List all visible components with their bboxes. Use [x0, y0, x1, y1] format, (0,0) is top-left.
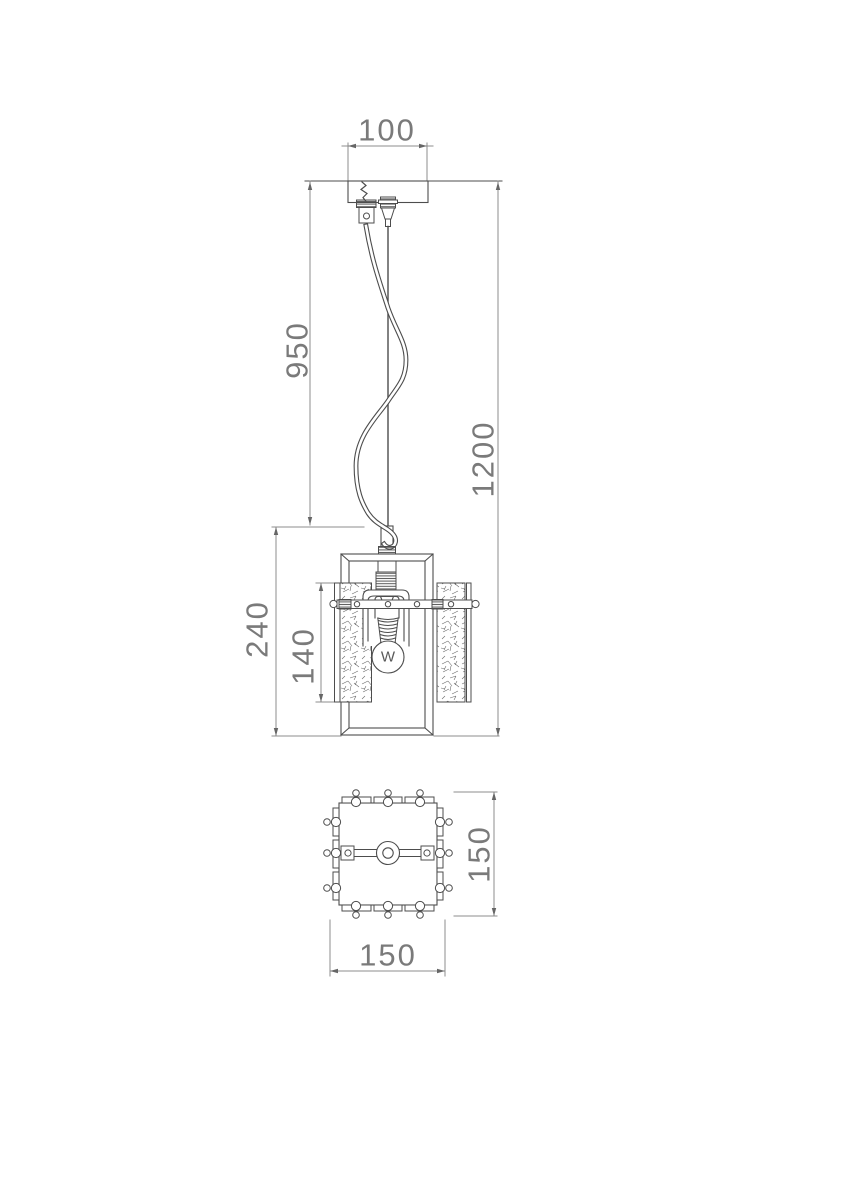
plate-center-hub [377, 842, 400, 865]
wire-grip [379, 197, 398, 227]
dim-canopy-width: 100 [358, 115, 416, 146]
bar-screw [448, 602, 453, 607]
bar-screw [354, 602, 359, 607]
dim-glass-panel-height: 140 [288, 627, 319, 685]
pendant-lamp-drawing [0, 0, 848, 1200]
bar-end-cap-left [330, 600, 337, 607]
bar-screw [385, 602, 390, 607]
bulb-wattage-label: W [381, 649, 395, 666]
dim-plate-depth: 150 [464, 825, 495, 883]
dim-plate-width: 150 [359, 940, 417, 971]
bar-end-cap-right [472, 600, 479, 607]
cord-grip-screw [364, 213, 370, 219]
dim-overall-height: 1200 [468, 421, 499, 498]
dim-body-height: 240 [242, 600, 273, 658]
mounting-bar [330, 600, 479, 610]
bar-screw [414, 602, 419, 607]
drawing-canvas: 100 950 1200 240 140 150 150 W [0, 0, 848, 1200]
suspension-cable [356, 226, 406, 547]
dim-suspension-length: 950 [282, 321, 313, 379]
cord-grip [357, 200, 377, 223]
socket-holder [363, 590, 409, 646]
